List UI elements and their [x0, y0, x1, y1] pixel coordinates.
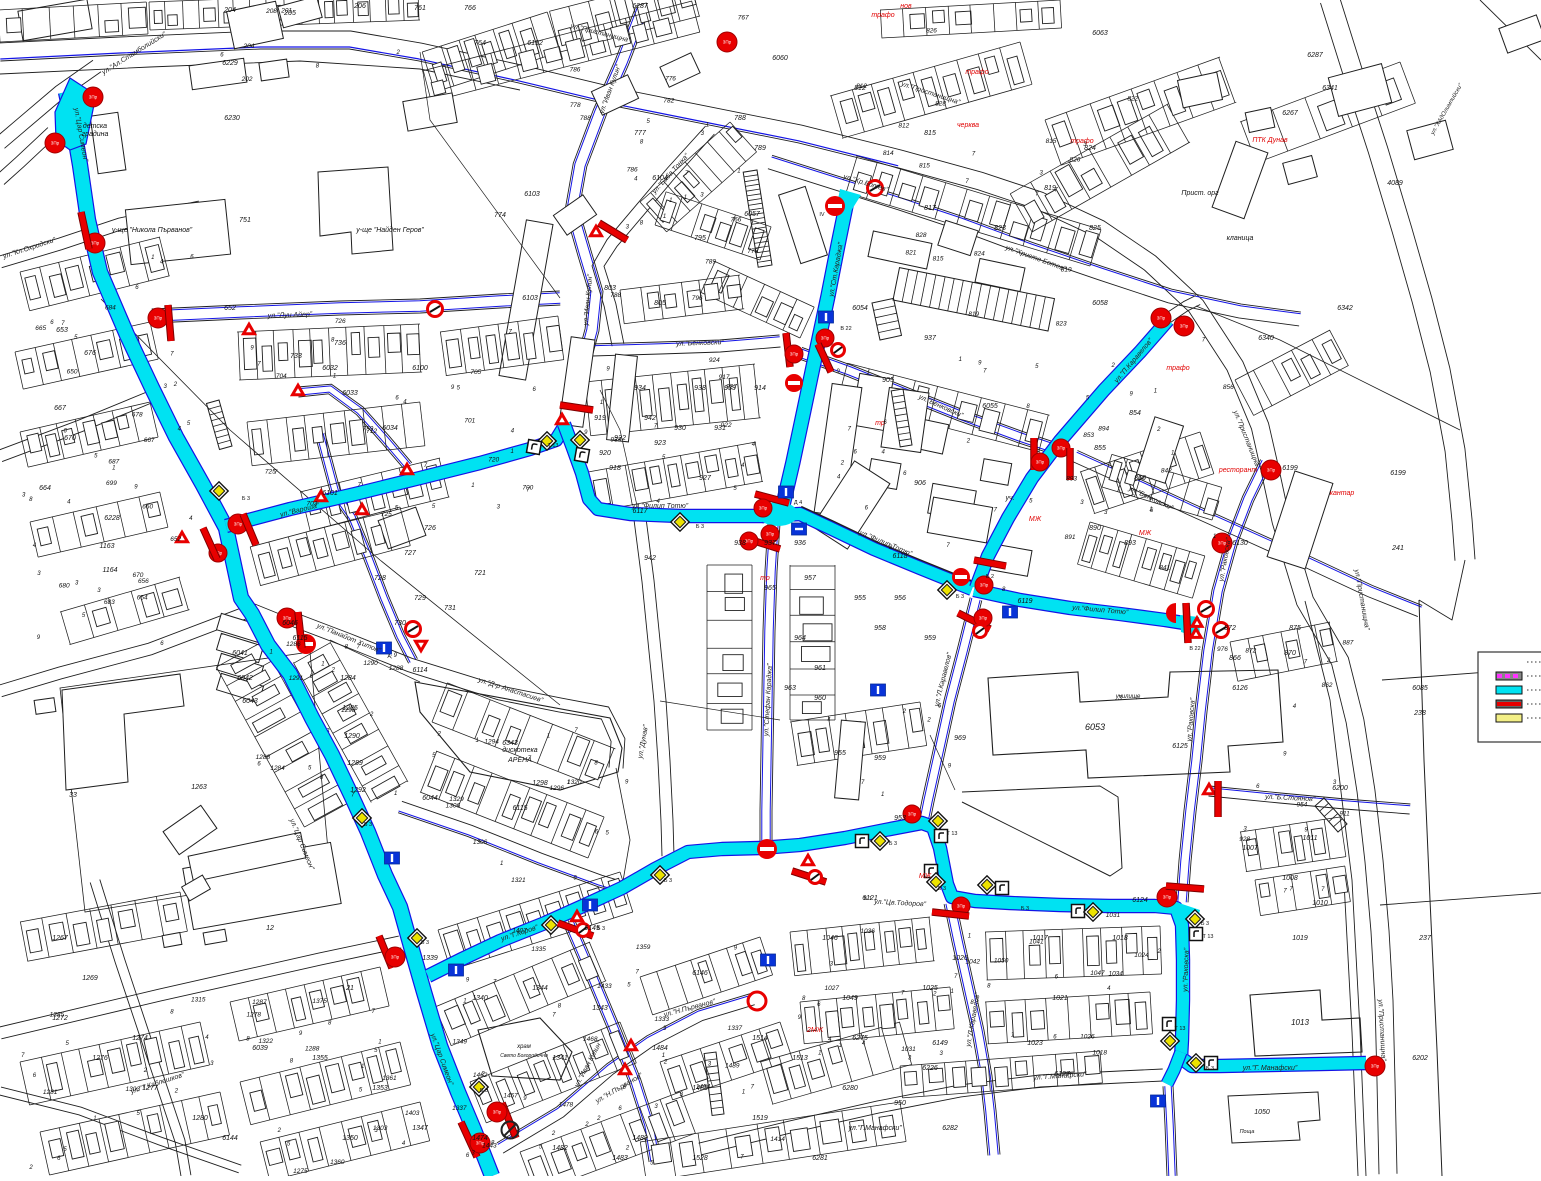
svg-text:725: 725 — [381, 511, 392, 518]
svg-text:6032: 6032 — [322, 365, 338, 372]
svg-text:1289: 1289 — [347, 760, 363, 767]
svg-text:3Пр: 3Пр — [766, 532, 775, 537]
svg-text:1407: 1407 — [512, 928, 527, 935]
svg-text:2: 2 — [966, 439, 971, 445]
svg-text:1489: 1489 — [725, 1062, 740, 1069]
svg-text:трафо: трафо — [1166, 365, 1189, 372]
svg-text:964: 964 — [794, 635, 806, 642]
svg-text:1340: 1340 — [472, 995, 488, 1002]
svg-text:826: 826 — [926, 27, 937, 34]
svg-text:1034: 1034 — [1108, 970, 1123, 977]
svg-text:812: 812 — [898, 123, 909, 130]
svg-text:1361: 1361 — [382, 1075, 397, 1082]
svg-text:950: 950 — [894, 1100, 906, 1107]
svg-text:969: 969 — [954, 735, 966, 742]
svg-text:ПТК Дунав: ПТК Дунав — [1252, 137, 1288, 144]
svg-text:1322: 1322 — [258, 1038, 273, 1045]
svg-text:920: 920 — [599, 450, 611, 457]
svg-text:1343: 1343 — [592, 1005, 608, 1012]
svg-text:1288: 1288 — [389, 665, 404, 672]
svg-text:трафо: трафо — [871, 12, 894, 19]
svg-text:853: 853 — [1083, 432, 1094, 439]
svg-text:893: 893 — [1066, 475, 1077, 482]
svg-text:6126: 6126 — [1232, 685, 1248, 692]
svg-text:12: 12 — [266, 925, 274, 932]
svg-text:653: 653 — [56, 327, 68, 334]
svg-text:761: 761 — [414, 5, 426, 12]
svg-text:3Пр: 3Пр — [89, 95, 98, 100]
svg-text:1478: 1478 — [559, 1101, 574, 1108]
svg-text:963: 963 — [784, 685, 796, 692]
svg-text:6033: 6033 — [342, 390, 358, 397]
svg-text:черква: черква — [957, 122, 979, 129]
svg-text:1482: 1482 — [552, 1145, 568, 1152]
svg-text:6228: 6228 — [104, 515, 120, 522]
svg-text:1: 1 — [684, 195, 687, 201]
svg-text:766: 766 — [730, 217, 741, 224]
svg-text:1303: 1303 — [373, 1125, 388, 1132]
svg-text:726: 726 — [424, 525, 436, 532]
svg-text:кланица: кланица — [1227, 235, 1254, 242]
svg-text:3Пр: 3Пр — [1057, 446, 1066, 451]
svg-text:1008: 1008 — [1282, 875, 1298, 882]
svg-text:922: 922 — [721, 422, 732, 429]
svg-text:3Пр: 3Пр — [391, 955, 400, 960]
svg-text:3Пр: 3Пр — [154, 316, 163, 321]
svg-text:6340: 6340 — [1258, 335, 1274, 342]
svg-text:786: 786 — [627, 167, 638, 174]
svg-text:1: 1 — [706, 122, 709, 128]
svg-text:1024: 1024 — [1134, 952, 1149, 959]
svg-text:1: 1 — [361, 1064, 364, 1070]
svg-text:1286: 1286 — [286, 641, 301, 648]
svg-text:1018: 1018 — [1092, 1049, 1107, 1056]
svg-text:1489: 1489 — [632, 1135, 648, 1142]
svg-text:6192: 6192 — [527, 40, 543, 47]
svg-text:683: 683 — [104, 599, 115, 606]
svg-text:1333: 1333 — [655, 1016, 670, 1023]
svg-text:824: 824 — [974, 250, 985, 257]
svg-text:1: 1 — [394, 791, 397, 797]
svg-text:667: 667 — [54, 405, 67, 412]
svg-text:2: 2 — [277, 1128, 282, 1134]
svg-text:918: 918 — [609, 465, 621, 472]
svg-text:1163: 1163 — [99, 543, 114, 550]
svg-text:Т 13: Т 13 — [1174, 1026, 1185, 1032]
svg-text:1298: 1298 — [532, 780, 548, 787]
svg-text:823: 823 — [1056, 320, 1067, 327]
svg-text:1320: 1320 — [567, 779, 582, 786]
svg-text:6287: 6287 — [632, 3, 649, 10]
svg-text:6202: 6202 — [1412, 1055, 1428, 1062]
svg-text:1: 1 — [742, 1090, 745, 1096]
svg-text:6058: 6058 — [1092, 300, 1108, 307]
svg-text:676: 676 — [84, 350, 96, 357]
svg-text:1050: 1050 — [1254, 1109, 1270, 1116]
svg-text:МЖ: МЖ — [1029, 516, 1042, 523]
svg-text:1513: 1513 — [792, 1055, 808, 1062]
svg-text:трафо: трафо — [1070, 138, 1093, 145]
svg-text:Б 3: Б 3 — [421, 940, 429, 946]
svg-text:937: 937 — [924, 335, 937, 342]
svg-text:812: 812 — [856, 83, 867, 90]
svg-text:Б 3: Б 3 — [1206, 1066, 1214, 1072]
svg-text:1010: 1010 — [1312, 900, 1328, 907]
svg-text:911: 911 — [1339, 810, 1350, 817]
svg-text:854: 854 — [1129, 410, 1141, 417]
svg-text:ресторант: ресторант — [1218, 467, 1257, 474]
svg-text:2: 2 — [173, 382, 178, 388]
svg-text:712: 712 — [366, 428, 377, 435]
svg-text:3Пр: 3Пр — [1163, 895, 1172, 900]
svg-text:3Пр: 3Пр — [91, 241, 100, 246]
svg-text:1321: 1321 — [511, 877, 526, 884]
svg-text:736: 736 — [334, 340, 346, 347]
svg-text:823: 823 — [994, 225, 1006, 232]
svg-text:Б 3: Б 3 — [938, 886, 946, 892]
svg-text:942: 942 — [644, 415, 656, 422]
svg-text:656: 656 — [138, 578, 149, 585]
svg-text:1290: 1290 — [344, 733, 360, 740]
svg-text:1: 1 — [663, 214, 666, 220]
svg-text:1281: 1281 — [43, 1089, 58, 1096]
svg-text:2: 2 — [932, 992, 937, 998]
svg-text:тр: тр — [760, 575, 770, 582]
svg-text:860: 860 — [1134, 475, 1146, 482]
svg-text:954: 954 — [1296, 802, 1307, 809]
svg-text:1287: 1287 — [252, 999, 267, 1006]
svg-text:6118: 6118 — [892, 553, 907, 560]
svg-text:6046: 6046 — [282, 620, 298, 627]
svg-text:700: 700 — [522, 484, 533, 491]
svg-text:6199: 6199 — [1282, 465, 1298, 472]
svg-text:Б 3: Б 3 — [242, 496, 250, 502]
svg-text:1337: 1337 — [728, 1025, 743, 1032]
svg-text:6287: 6287 — [1307, 52, 1324, 59]
svg-text:уч.: уч. — [1004, 495, 1014, 502]
svg-text:1337: 1337 — [452, 1105, 467, 1112]
svg-text:1: 1 — [500, 861, 503, 867]
svg-text:6055: 6055 — [982, 403, 998, 410]
svg-text:Б 3: Б 3 — [1201, 921, 1209, 927]
svg-text:875: 875 — [1289, 625, 1301, 632]
svg-text:у-ще ”Найден Геров”: у-ще ”Найден Геров” — [355, 226, 424, 234]
svg-text:1474: 1474 — [472, 1135, 488, 1142]
svg-text:788: 788 — [734, 115, 746, 122]
svg-text:959: 959 — [874, 755, 886, 762]
svg-text:6275: 6275 — [852, 1035, 868, 1042]
svg-text:1: 1 — [333, 373, 336, 379]
svg-text:727: 727 — [404, 550, 417, 557]
svg-text:1026: 1026 — [1080, 1033, 1095, 1040]
svg-text:789: 789 — [705, 259, 716, 266]
svg-text:ул.”Луи Айер”: ул.”Луи Айер” — [267, 310, 313, 320]
svg-text:1303: 1303 — [126, 1086, 141, 1093]
svg-text:2: 2 — [625, 1145, 630, 1151]
svg-text:6226: 6226 — [922, 1065, 938, 1072]
svg-text:805: 805 — [654, 300, 666, 307]
svg-text:Д 4: Д 4 — [794, 500, 802, 506]
svg-text:726: 726 — [335, 318, 346, 325]
svg-text:3Пр: 3Пр — [745, 539, 754, 544]
svg-text:1: 1 — [475, 738, 478, 744]
svg-text:1027: 1027 — [825, 985, 840, 992]
svg-text:905: 905 — [882, 377, 894, 384]
svg-text:2: 2 — [174, 1089, 179, 1095]
svg-text:Б 3: Б 3 — [480, 1088, 488, 1094]
svg-text:1019: 1019 — [1292, 935, 1308, 942]
svg-text:1288: 1288 — [305, 1046, 320, 1053]
svg-text:855: 855 — [1094, 445, 1106, 452]
svg-text:241: 241 — [1391, 545, 1404, 552]
svg-text:778: 778 — [570, 102, 581, 109]
svg-text:1359: 1359 — [636, 944, 651, 951]
svg-text:2: 2 — [1326, 658, 1331, 664]
svg-text:650: 650 — [67, 369, 78, 376]
svg-text:1: 1 — [818, 1050, 821, 1056]
svg-text:1483: 1483 — [612, 1155, 628, 1162]
svg-text:815: 815 — [1046, 138, 1057, 145]
svg-text:1329: 1329 — [449, 796, 464, 803]
svg-text:2: 2 — [331, 667, 336, 673]
svg-text:1049: 1049 — [842, 995, 858, 1002]
svg-text:Б 3: Б 3 — [889, 841, 897, 847]
svg-text:705: 705 — [470, 369, 481, 376]
svg-text:1023: 1023 — [1027, 1040, 1043, 1047]
svg-text:237: 237 — [1418, 935, 1432, 942]
svg-text:866: 866 — [1229, 655, 1241, 662]
svg-text:928: 928 — [1239, 836, 1250, 843]
svg-text:1007: 1007 — [1242, 845, 1259, 852]
svg-text:777: 777 — [634, 130, 647, 137]
svg-text:959: 959 — [924, 635, 936, 642]
svg-text:720: 720 — [488, 457, 499, 464]
svg-text:6117: 6117 — [632, 508, 648, 515]
svg-text:652: 652 — [170, 536, 181, 543]
svg-text:6115: 6115 — [512, 805, 527, 812]
svg-text:2: 2 — [596, 1116, 601, 1122]
svg-text:6125: 6125 — [1172, 743, 1188, 750]
svg-text:1: 1 — [959, 357, 962, 363]
svg-text:6114: 6114 — [412, 667, 427, 674]
svg-text:957: 957 — [804, 575, 817, 582]
svg-text:788: 788 — [610, 292, 621, 299]
svg-text:3Пр: 3Пр — [759, 506, 768, 511]
svg-text:894: 894 — [1098, 426, 1109, 433]
svg-text:1: 1 — [737, 168, 740, 174]
svg-text:1335: 1335 — [531, 946, 546, 953]
svg-text:841: 841 — [1159, 565, 1170, 572]
svg-text:678: 678 — [132, 411, 143, 418]
svg-text:2: 2 — [1110, 363, 1115, 369]
svg-text:2: 2 — [395, 50, 400, 56]
svg-text:1: 1 — [463, 998, 466, 1004]
svg-text:828: 828 — [916, 232, 927, 239]
svg-text:6085: 6085 — [1412, 685, 1428, 692]
svg-text:927: 927 — [726, 383, 737, 390]
svg-text:6104: 6104 — [652, 175, 668, 182]
svg-text:В 22: В 22 — [840, 326, 851, 332]
svg-text:1280: 1280 — [192, 1115, 208, 1122]
svg-text:1041: 1041 — [1029, 939, 1044, 946]
svg-text:3Пр: 3Пр — [1267, 468, 1276, 473]
svg-text:6100: 6100 — [412, 365, 428, 372]
svg-text:870: 870 — [1284, 650, 1296, 657]
svg-text:958: 958 — [874, 625, 886, 632]
svg-text:862: 862 — [1322, 682, 1333, 689]
svg-text:1347: 1347 — [412, 1125, 429, 1132]
svg-text:1047: 1047 — [1090, 970, 1105, 977]
svg-text:955: 955 — [854, 595, 866, 602]
svg-text:6044: 6044 — [422, 795, 438, 802]
svg-text:1350: 1350 — [342, 1135, 358, 1142]
svg-text:1: 1 — [1154, 389, 1157, 395]
svg-text:3: 3 — [1118, 695, 1122, 702]
svg-text:728: 728 — [374, 575, 386, 582]
svg-text:699: 699 — [106, 480, 117, 487]
svg-text:786: 786 — [570, 66, 581, 73]
svg-text:1: 1 — [968, 933, 971, 939]
svg-text:887: 887 — [1342, 640, 1353, 647]
svg-text:1: 1 — [547, 734, 550, 740]
svg-text:6341: 6341 — [1322, 85, 1338, 92]
svg-text:33: 33 — [69, 792, 77, 799]
svg-text:872: 872 — [1245, 647, 1256, 654]
svg-text:815: 815 — [933, 256, 944, 263]
svg-text:кантар: кантар — [1330, 490, 1355, 497]
svg-text:667: 667 — [144, 437, 155, 444]
svg-text:955: 955 — [834, 750, 846, 757]
svg-text:6060: 6060 — [772, 55, 788, 62]
svg-text:1355: 1355 — [312, 1055, 328, 1062]
svg-text:у-ще ”Никола Първанов”: у-ще ”Никола Първанов” — [111, 227, 193, 234]
svg-text:6230: 6230 — [224, 115, 240, 122]
svg-text:6282: 6282 — [942, 1125, 958, 1132]
svg-text:1018: 1018 — [1112, 935, 1128, 942]
svg-text:817: 817 — [924, 205, 937, 212]
svg-text:821: 821 — [906, 250, 917, 257]
svg-text:704: 704 — [276, 373, 287, 380]
svg-text:654: 654 — [137, 594, 148, 601]
svg-text:6042: 6042 — [237, 675, 253, 682]
svg-text:803: 803 — [604, 285, 616, 292]
svg-text:789: 789 — [754, 145, 766, 152]
svg-text:729: 729 — [414, 595, 426, 602]
svg-text:3Пр: 3Пр — [1157, 316, 1166, 321]
svg-text:1306: 1306 — [473, 839, 488, 846]
svg-text:1454: 1454 — [696, 1083, 711, 1090]
svg-text:842: 842 — [1161, 468, 1172, 475]
svg-text:1046: 1046 — [822, 935, 838, 942]
svg-text:1315: 1315 — [191, 996, 206, 1003]
svg-text:детска: детска — [83, 122, 107, 130]
svg-text:815: 815 — [919, 162, 930, 169]
svg-text:1514: 1514 — [752, 1035, 768, 1042]
svg-text:930: 930 — [674, 425, 686, 432]
svg-text:956: 956 — [894, 595, 906, 602]
svg-text:927: 927 — [699, 475, 712, 482]
svg-text:933: 933 — [610, 436, 621, 443]
svg-text:3Пр: 3Пр — [723, 40, 732, 45]
svg-text:3Пр: 3Пр — [790, 352, 799, 357]
svg-text:1298: 1298 — [341, 707, 356, 714]
svg-text:2: 2 — [840, 460, 845, 466]
svg-text:3Пр: 3Пр — [51, 141, 60, 146]
svg-text:204: 204 — [223, 7, 236, 14]
svg-text:1375: 1375 — [312, 998, 327, 1005]
svg-text:796: 796 — [692, 295, 703, 302]
svg-text:1: 1 — [881, 792, 884, 798]
svg-text:Б 3: Б 3 — [664, 878, 672, 884]
svg-text:825: 825 — [1089, 225, 1101, 232]
svg-text:Б 3: Б 3 — [597, 926, 605, 932]
svg-text:703: 703 — [306, 500, 317, 507]
svg-text:914: 914 — [754, 385, 766, 392]
svg-text:2: 2 — [143, 1068, 148, 1074]
svg-text:3Пр: 3Пр — [493, 1110, 502, 1115]
svg-text:819: 819 — [968, 311, 979, 318]
svg-text:6039: 6039 — [252, 1045, 268, 1052]
svg-text:891: 891 — [1065, 534, 1076, 541]
svg-text:1306: 1306 — [446, 802, 461, 809]
svg-text:6229: 6229 — [222, 60, 238, 67]
svg-text:965: 965 — [764, 585, 776, 592]
svg-text:725: 725 — [265, 468, 276, 475]
svg-text:Т 13: Т 13 — [946, 831, 957, 837]
svg-text:2: 2 — [663, 1059, 668, 1065]
svg-text:680: 680 — [59, 583, 70, 590]
svg-text:670: 670 — [133, 572, 144, 579]
svg-text:Прист. орг: Прист. орг — [1181, 190, 1219, 197]
svg-text:1278: 1278 — [247, 1012, 262, 1019]
svg-text:819: 819 — [1061, 266, 1072, 273]
svg-text:6280: 6280 — [842, 1085, 858, 1092]
svg-text:2: 2 — [902, 709, 907, 715]
svg-text:856: 856 — [1223, 384, 1234, 391]
svg-text:6054: 6054 — [852, 305, 868, 312]
svg-text:6343: 6343 — [502, 740, 518, 747]
svg-text:652: 652 — [224, 305, 236, 312]
svg-text:1: 1 — [1213, 534, 1216, 540]
svg-text:6101: 6101 — [322, 490, 338, 497]
svg-text:Б 2: Б 2 — [986, 574, 994, 580]
svg-text:893: 893 — [1124, 540, 1136, 547]
svg-text:1042: 1042 — [965, 959, 980, 966]
svg-text:IV: IV — [819, 212, 825, 218]
svg-text:1277: 1277 — [142, 1085, 159, 1092]
svg-text:2: 2 — [1156, 427, 1161, 433]
svg-text:778: 778 — [747, 248, 758, 255]
svg-text:660: 660 — [142, 504, 153, 511]
svg-text:822: 822 — [1127, 96, 1138, 103]
svg-text:2: 2 — [551, 1131, 556, 1137]
svg-text:6146: 6146 — [692, 970, 708, 977]
svg-text:206: 206 — [353, 3, 366, 10]
svg-text:1011: 1011 — [1302, 835, 1317, 842]
svg-text:1360: 1360 — [330, 1159, 345, 1166]
svg-text:ул.”Г.Манафски”: ул.”Г.Манафски” — [847, 1125, 902, 1132]
svg-text:960: 960 — [814, 695, 826, 702]
svg-text:Б 3: Б 3 — [696, 524, 704, 530]
svg-text:202: 202 — [241, 76, 253, 83]
svg-text:6103: 6103 — [522, 295, 538, 302]
svg-text:Т 13: Т 13 — [547, 443, 558, 449]
svg-text:1036: 1036 — [860, 928, 875, 935]
svg-text:6144: 6144 — [222, 1135, 238, 1142]
svg-text:1031: 1031 — [1106, 912, 1121, 919]
svg-text:1: 1 — [1011, 1032, 1014, 1038]
svg-text:1519: 1519 — [752, 1115, 768, 1122]
